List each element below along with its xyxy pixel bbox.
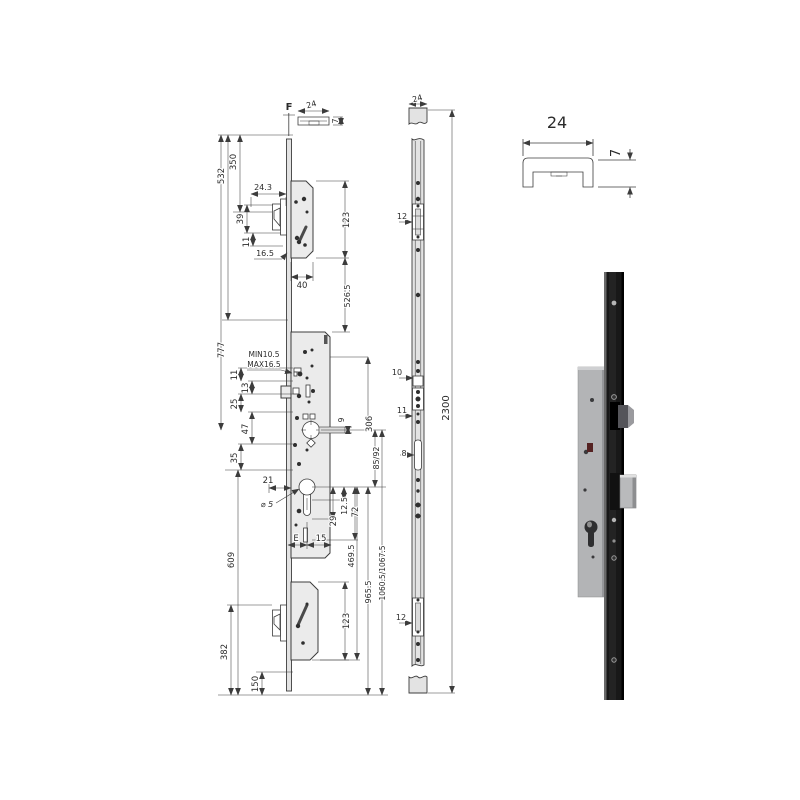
label-profile-24: 24 [305, 99, 317, 110]
label-dim-47: 47 [241, 424, 251, 435]
label-dim-29: 29 [329, 516, 339, 527]
label-dim-72: 72 [351, 507, 361, 518]
label-dim-350: 350 [229, 154, 239, 170]
label-dim-609: 609 [227, 552, 237, 568]
label-fp-12-bottom: 12 [396, 613, 406, 622]
left-section-view: F24735053277760938215024.3391116.5401235… [217, 99, 388, 695]
screenshot-root: F24735053277760938215024.3391116.5401235… [0, 0, 800, 800]
photo-lock-case [578, 367, 606, 597]
profile-cross-section: 247 [523, 113, 636, 198]
label-dim-12.5: 12.5 [340, 497, 349, 515]
profile-detail-labels: 247 [547, 113, 624, 157]
label-fp-2300: 2300 [441, 395, 452, 420]
label-note-max: MAX16.5 [247, 360, 281, 369]
label-dim-123-top: 123 [342, 212, 352, 228]
label-dim-15: 15 [316, 534, 327, 544]
label-dim-150: 150 [251, 676, 261, 692]
technical-drawing-canvas: F24735053277760938215024.3391116.5401235… [0, 0, 800, 800]
label-fp-8: 8 [401, 449, 406, 458]
case-red-detail [587, 443, 593, 452]
strip-side-tab [281, 386, 291, 398]
label-dim-24.3: 24.3 [254, 183, 272, 192]
label-fp-11: 11 [397, 406, 407, 415]
label-fp-10: 10 [392, 368, 402, 377]
label-dim-40: 40 [297, 281, 308, 291]
label-dim-39: 39 [236, 214, 246, 225]
label-dim-21: 21 [263, 476, 274, 486]
photo-deadbolt [610, 473, 636, 510]
label-dim-85-92: 85/92 [372, 446, 381, 469]
label-dim-9: 9 [337, 417, 346, 422]
label-dim-532: 532 [217, 168, 227, 184]
label-pf-7: 7 [609, 149, 624, 157]
label-dim-306: 306 [365, 416, 375, 432]
label-dim-25: 25 [230, 399, 240, 410]
label-fp-12-top: 12 [397, 212, 407, 221]
label-dim-dia5: ⌀ 5 [261, 500, 273, 509]
label-dim-777: 777 [217, 342, 227, 358]
label-profile-7: 7 [331, 118, 340, 123]
faceplate-bottom-cap [409, 676, 427, 693]
channel-profile-outline [523, 158, 593, 187]
faceplate-front-view: 241210118122300 [392, 93, 455, 693]
label-pf-24: 24 [547, 113, 567, 132]
product-photo [578, 272, 636, 700]
label-fp-24: 24 [411, 93, 423, 104]
photo-latch-bolt [610, 402, 634, 430]
f-reference-mark [283, 113, 295, 136]
bottom-hook-case [273, 582, 319, 660]
label-dim-382: 382 [220, 644, 230, 660]
label-note-min: MIN10.5 [249, 350, 280, 359]
label-dim-1060.5: 1060.5/1067.5 [378, 545, 387, 600]
label-dim-469.5: 469.5 [347, 545, 356, 568]
top-hook-case [273, 181, 314, 258]
label-dim-11-top: 11 [242, 237, 252, 248]
label-dim-35: 35 [230, 453, 240, 464]
label-f-ref: F [286, 102, 293, 113]
label-dim-13: 13 [241, 383, 251, 394]
label-dim-965.5: 965.5 [364, 581, 373, 604]
label-dim-16.5: 16.5 [256, 249, 274, 258]
label-dim-526.5: 526.5 [343, 285, 352, 308]
faceplate-top-cap [409, 108, 427, 124]
label-dim-123-bottom: 123 [342, 613, 352, 629]
strip-screw-hole [612, 301, 617, 306]
label-dim-E: E [293, 534, 298, 544]
label-dim-11-mid: 11 [230, 370, 240, 381]
